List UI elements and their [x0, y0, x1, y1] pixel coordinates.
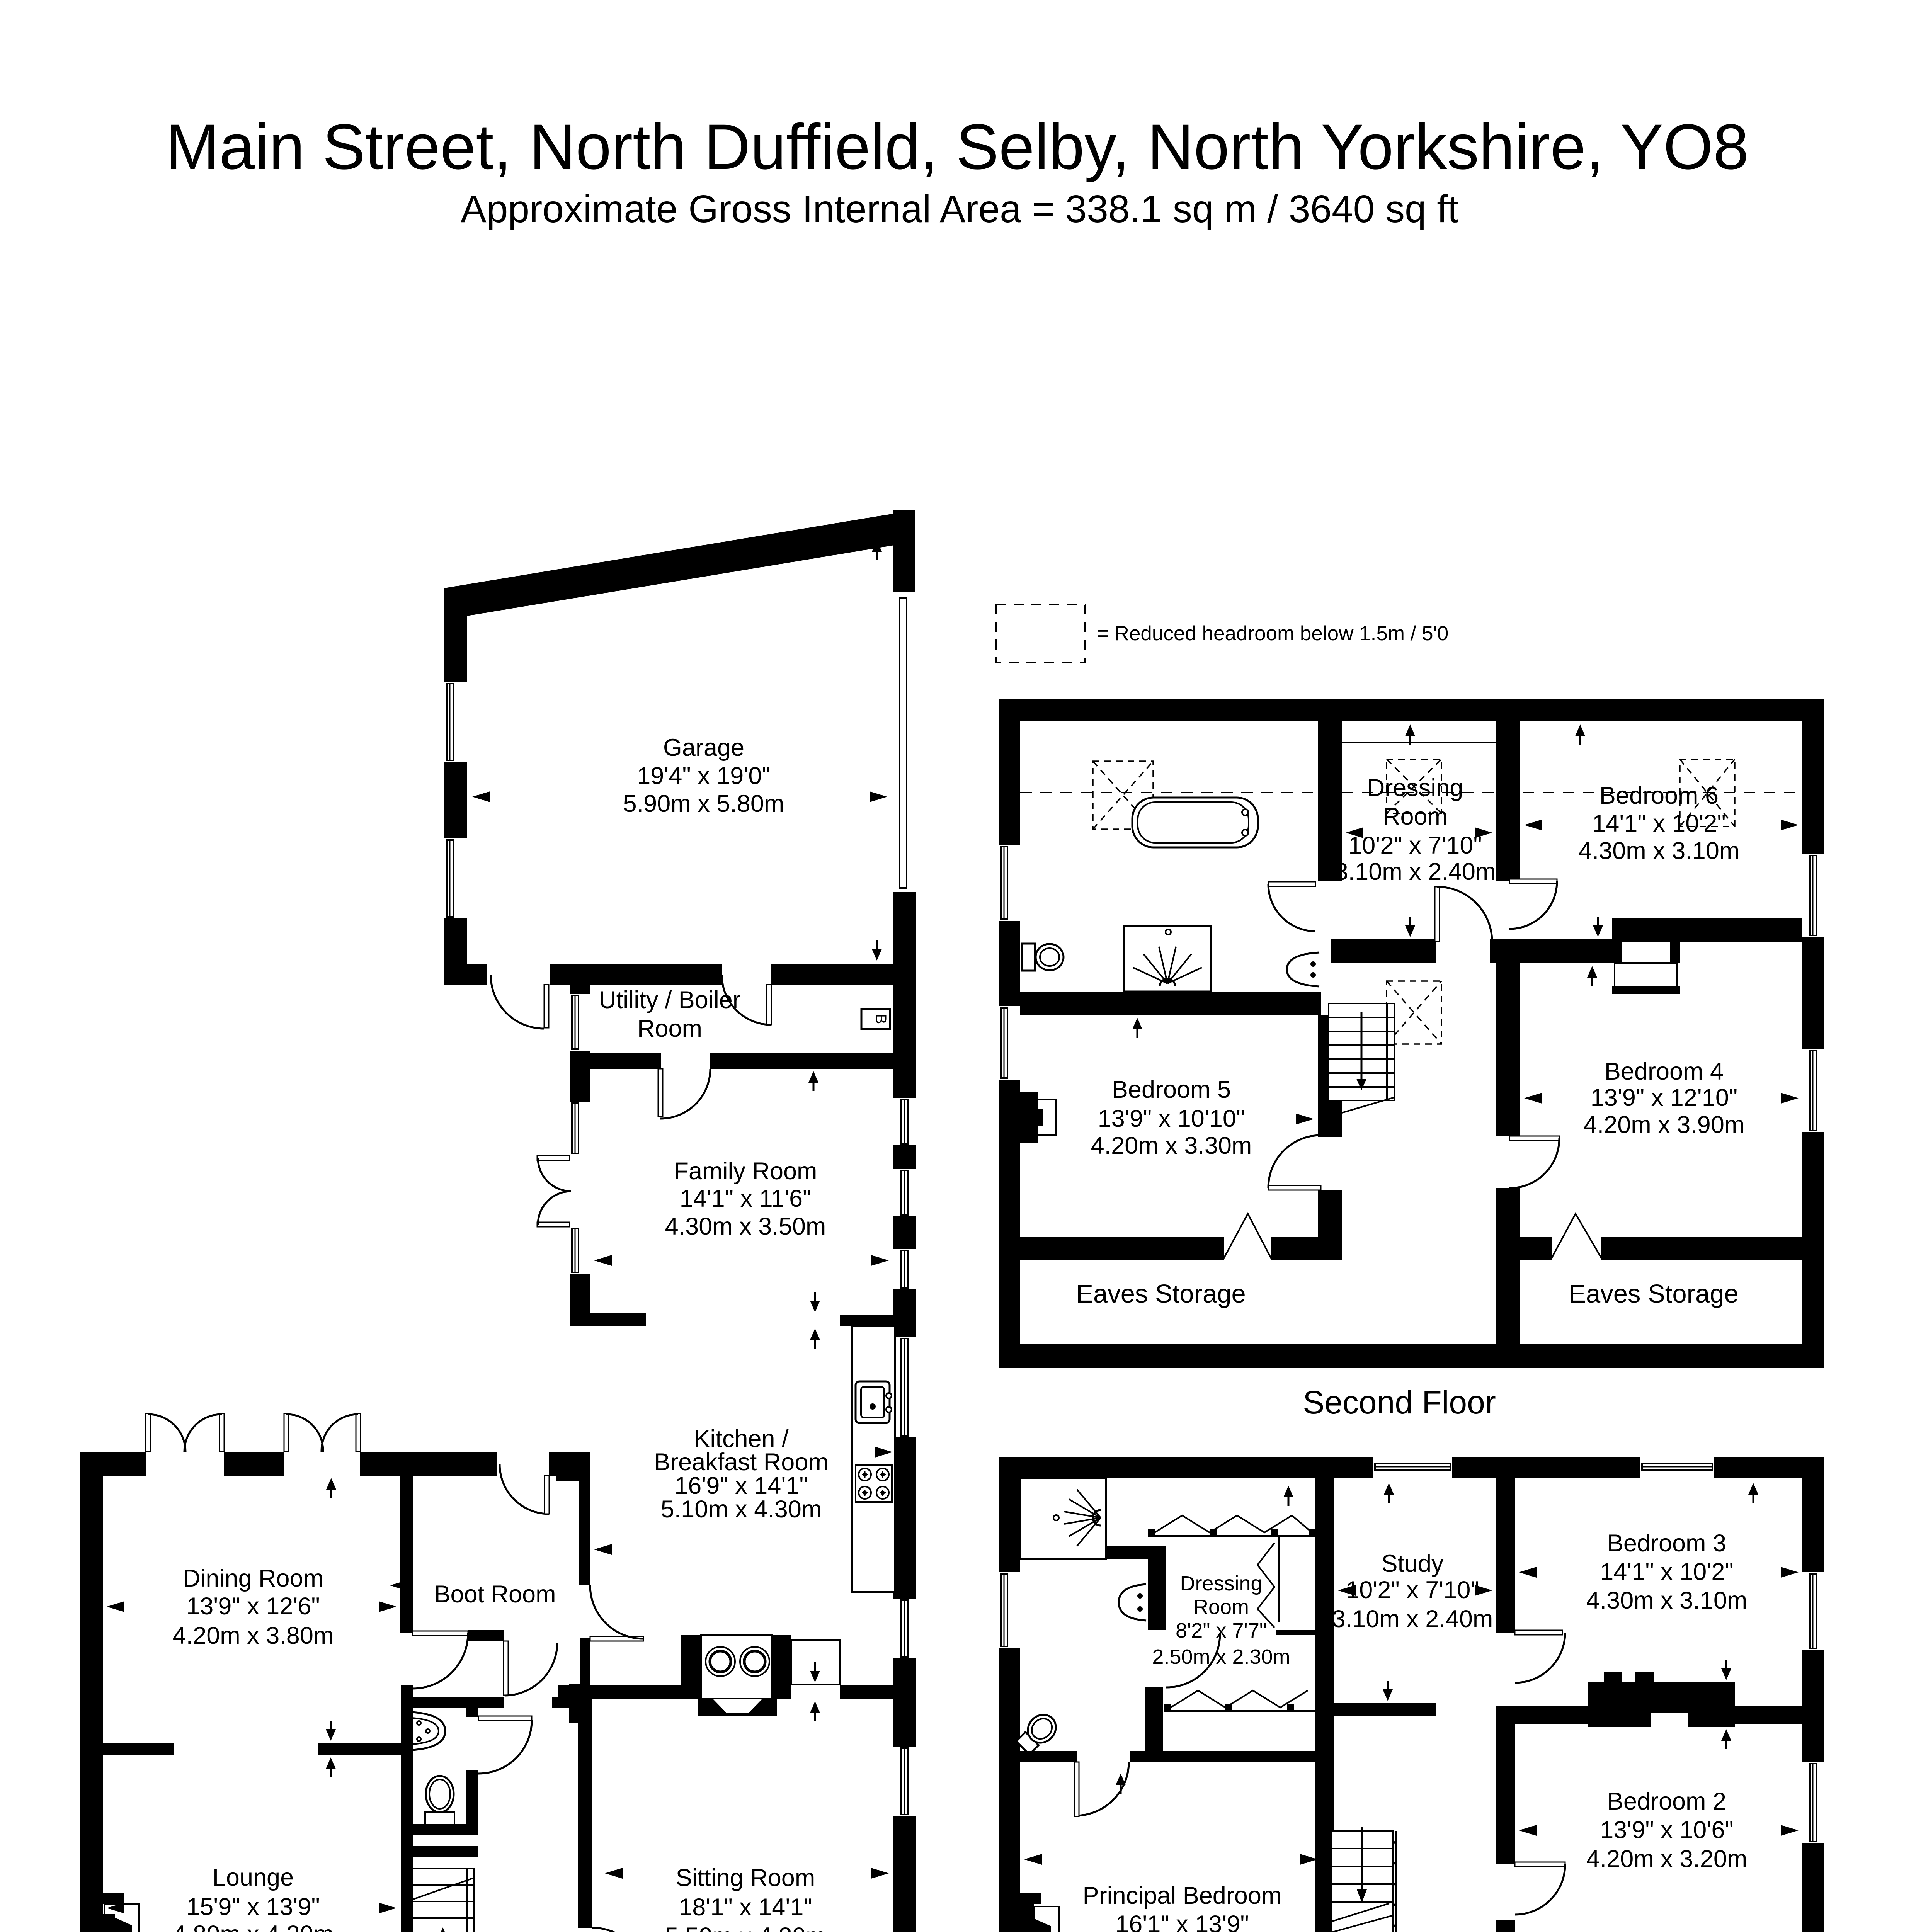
svg-text:13'9" x 12'10": 13'9" x 12'10"	[1591, 1084, 1738, 1111]
svg-text:Second Floor: Second Floor	[1303, 1384, 1496, 1420]
svg-text:10'2" x 7'10": 10'2" x 7'10"	[1346, 1577, 1479, 1604]
svg-text:4.20m x 3.20m: 4.20m x 3.20m	[1586, 1845, 1748, 1872]
svg-text:14'1" x 10'2": 14'1" x 10'2"	[1600, 1558, 1734, 1585]
svg-text:13'9" x 10'6": 13'9" x 10'6"	[1600, 1816, 1734, 1844]
svg-text:Sitting Room: Sitting Room	[676, 1864, 815, 1891]
svg-text:19'4" x 19'0": 19'4" x 19'0"	[637, 762, 771, 789]
svg-text:4.30m x 3.10m: 4.30m x 3.10m	[1579, 837, 1740, 864]
svg-text:13'9" x 10'10": 13'9" x 10'10"	[1098, 1105, 1245, 1132]
svg-text:5.50m x 4.30m: 5.50m x 4.30m	[665, 1923, 826, 1932]
svg-text:Principal Bedroom: Principal Bedroom	[1083, 1882, 1282, 1909]
svg-text:Boot Room: Boot Room	[434, 1581, 556, 1608]
svg-text:3.10m x 2.40m: 3.10m x 2.40m	[1332, 1605, 1493, 1633]
svg-text:Family Room: Family Room	[674, 1158, 817, 1185]
svg-text:Bedroom 3: Bedroom 3	[1607, 1530, 1726, 1557]
svg-text:= Reduced headroom below 1.5m: = Reduced headroom below 1.5m / 5'0	[1097, 622, 1448, 645]
svg-text:Study: Study	[1381, 1550, 1444, 1577]
svg-text:Dressing: Dressing	[1367, 774, 1463, 801]
svg-text:Room: Room	[1383, 803, 1448, 830]
svg-text:5.90m x 5.80m: 5.90m x 5.80m	[623, 790, 784, 817]
svg-text:Room: Room	[637, 1015, 702, 1042]
svg-text:14'1" x 10'2": 14'1" x 10'2"	[1592, 810, 1726, 837]
svg-text:3.10m x 2.40m: 3.10m x 2.40m	[1335, 858, 1496, 885]
svg-text:Bedroom 5: Bedroom 5	[1112, 1076, 1231, 1103]
svg-text:Room: Room	[1193, 1595, 1249, 1619]
svg-text:5.10m x 4.30m: 5.10m x 4.30m	[661, 1496, 822, 1523]
svg-text:4.80m x 4.20m: 4.80m x 4.20m	[173, 1921, 334, 1932]
svg-text:Dining Room: Dining Room	[183, 1565, 323, 1592]
svg-text:Breakfast Room: Breakfast Room	[654, 1449, 829, 1476]
svg-text:15'9" x 13'9": 15'9" x 13'9"	[186, 1893, 320, 1920]
svg-text:4.30m x 3.50m: 4.30m x 3.50m	[665, 1213, 826, 1240]
svg-text:18'1" x 14'1": 18'1" x 14'1"	[679, 1894, 812, 1921]
svg-text:4.20m x 3.80m: 4.20m x 3.80m	[173, 1622, 334, 1649]
svg-text:4.20m x 3.90m: 4.20m x 3.90m	[1584, 1111, 1745, 1138]
svg-text:4.30m x 3.10m: 4.30m x 3.10m	[1586, 1587, 1748, 1614]
svg-text:Eaves Storage: Eaves Storage	[1076, 1279, 1246, 1308]
svg-text:Bedroom 4: Bedroom 4	[1605, 1058, 1724, 1085]
svg-text:B: B	[872, 1014, 889, 1024]
svg-text:16'1" x 13'9": 16'1" x 13'9"	[1115, 1911, 1249, 1932]
svg-text:Garage: Garage	[663, 734, 744, 761]
svg-text:4.20m x 3.30m: 4.20m x 3.30m	[1091, 1132, 1252, 1159]
svg-text:Main Street, North Duffield, S: Main Street, North Duffield, Selby, Nort…	[166, 111, 1749, 183]
svg-text:16'9" x 14'1": 16'9" x 14'1"	[674, 1472, 808, 1499]
svg-text:Approximate Gross Internal Are: Approximate Gross Internal Area = 338.1 …	[461, 187, 1458, 231]
svg-text:Utility / Boiler: Utility / Boiler	[599, 986, 741, 1014]
svg-text:2.50m x 2.30m: 2.50m x 2.30m	[1152, 1645, 1290, 1668]
svg-text:8'2" x 7'7": 8'2" x 7'7"	[1176, 1619, 1267, 1642]
svg-text:Bedroom 2: Bedroom 2	[1607, 1788, 1726, 1815]
svg-text:13'9" x 12'6": 13'9" x 12'6"	[186, 1593, 320, 1620]
svg-text:Eaves Storage: Eaves Storage	[1569, 1279, 1739, 1308]
svg-text:14'1" x 11'6": 14'1" x 11'6"	[680, 1185, 812, 1212]
svg-text:Bedroom 6: Bedroom 6	[1600, 782, 1719, 809]
svg-text:Lounge: Lounge	[213, 1864, 294, 1891]
svg-text:Dressing: Dressing	[1180, 1572, 1262, 1595]
svg-text:10'2" x 7'10": 10'2" x 7'10"	[1348, 832, 1482, 859]
